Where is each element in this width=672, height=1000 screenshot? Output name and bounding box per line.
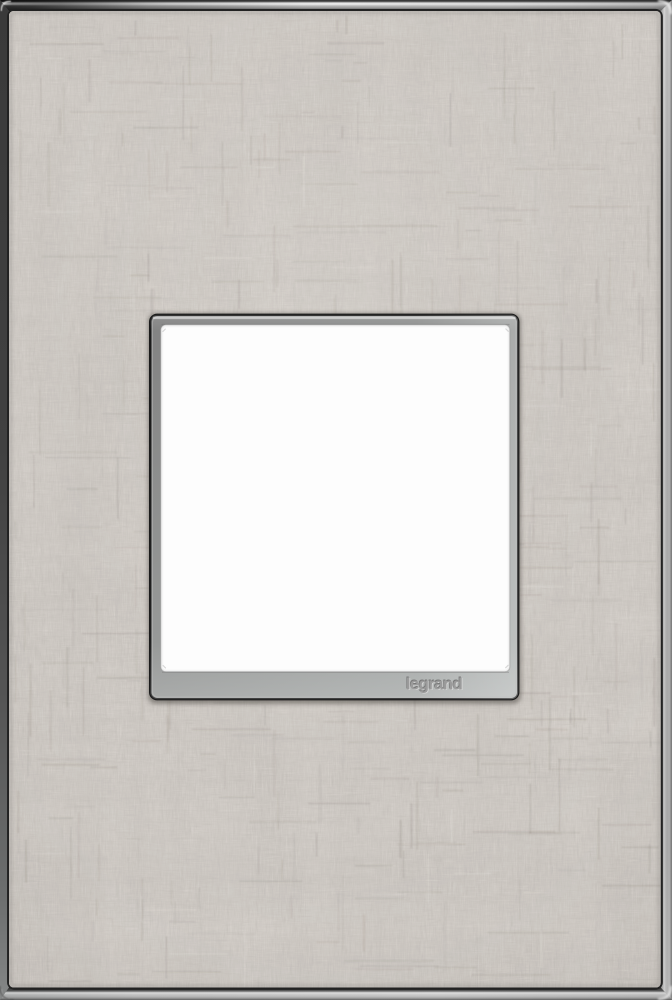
svg-text:legrand: legrand xyxy=(406,674,463,693)
